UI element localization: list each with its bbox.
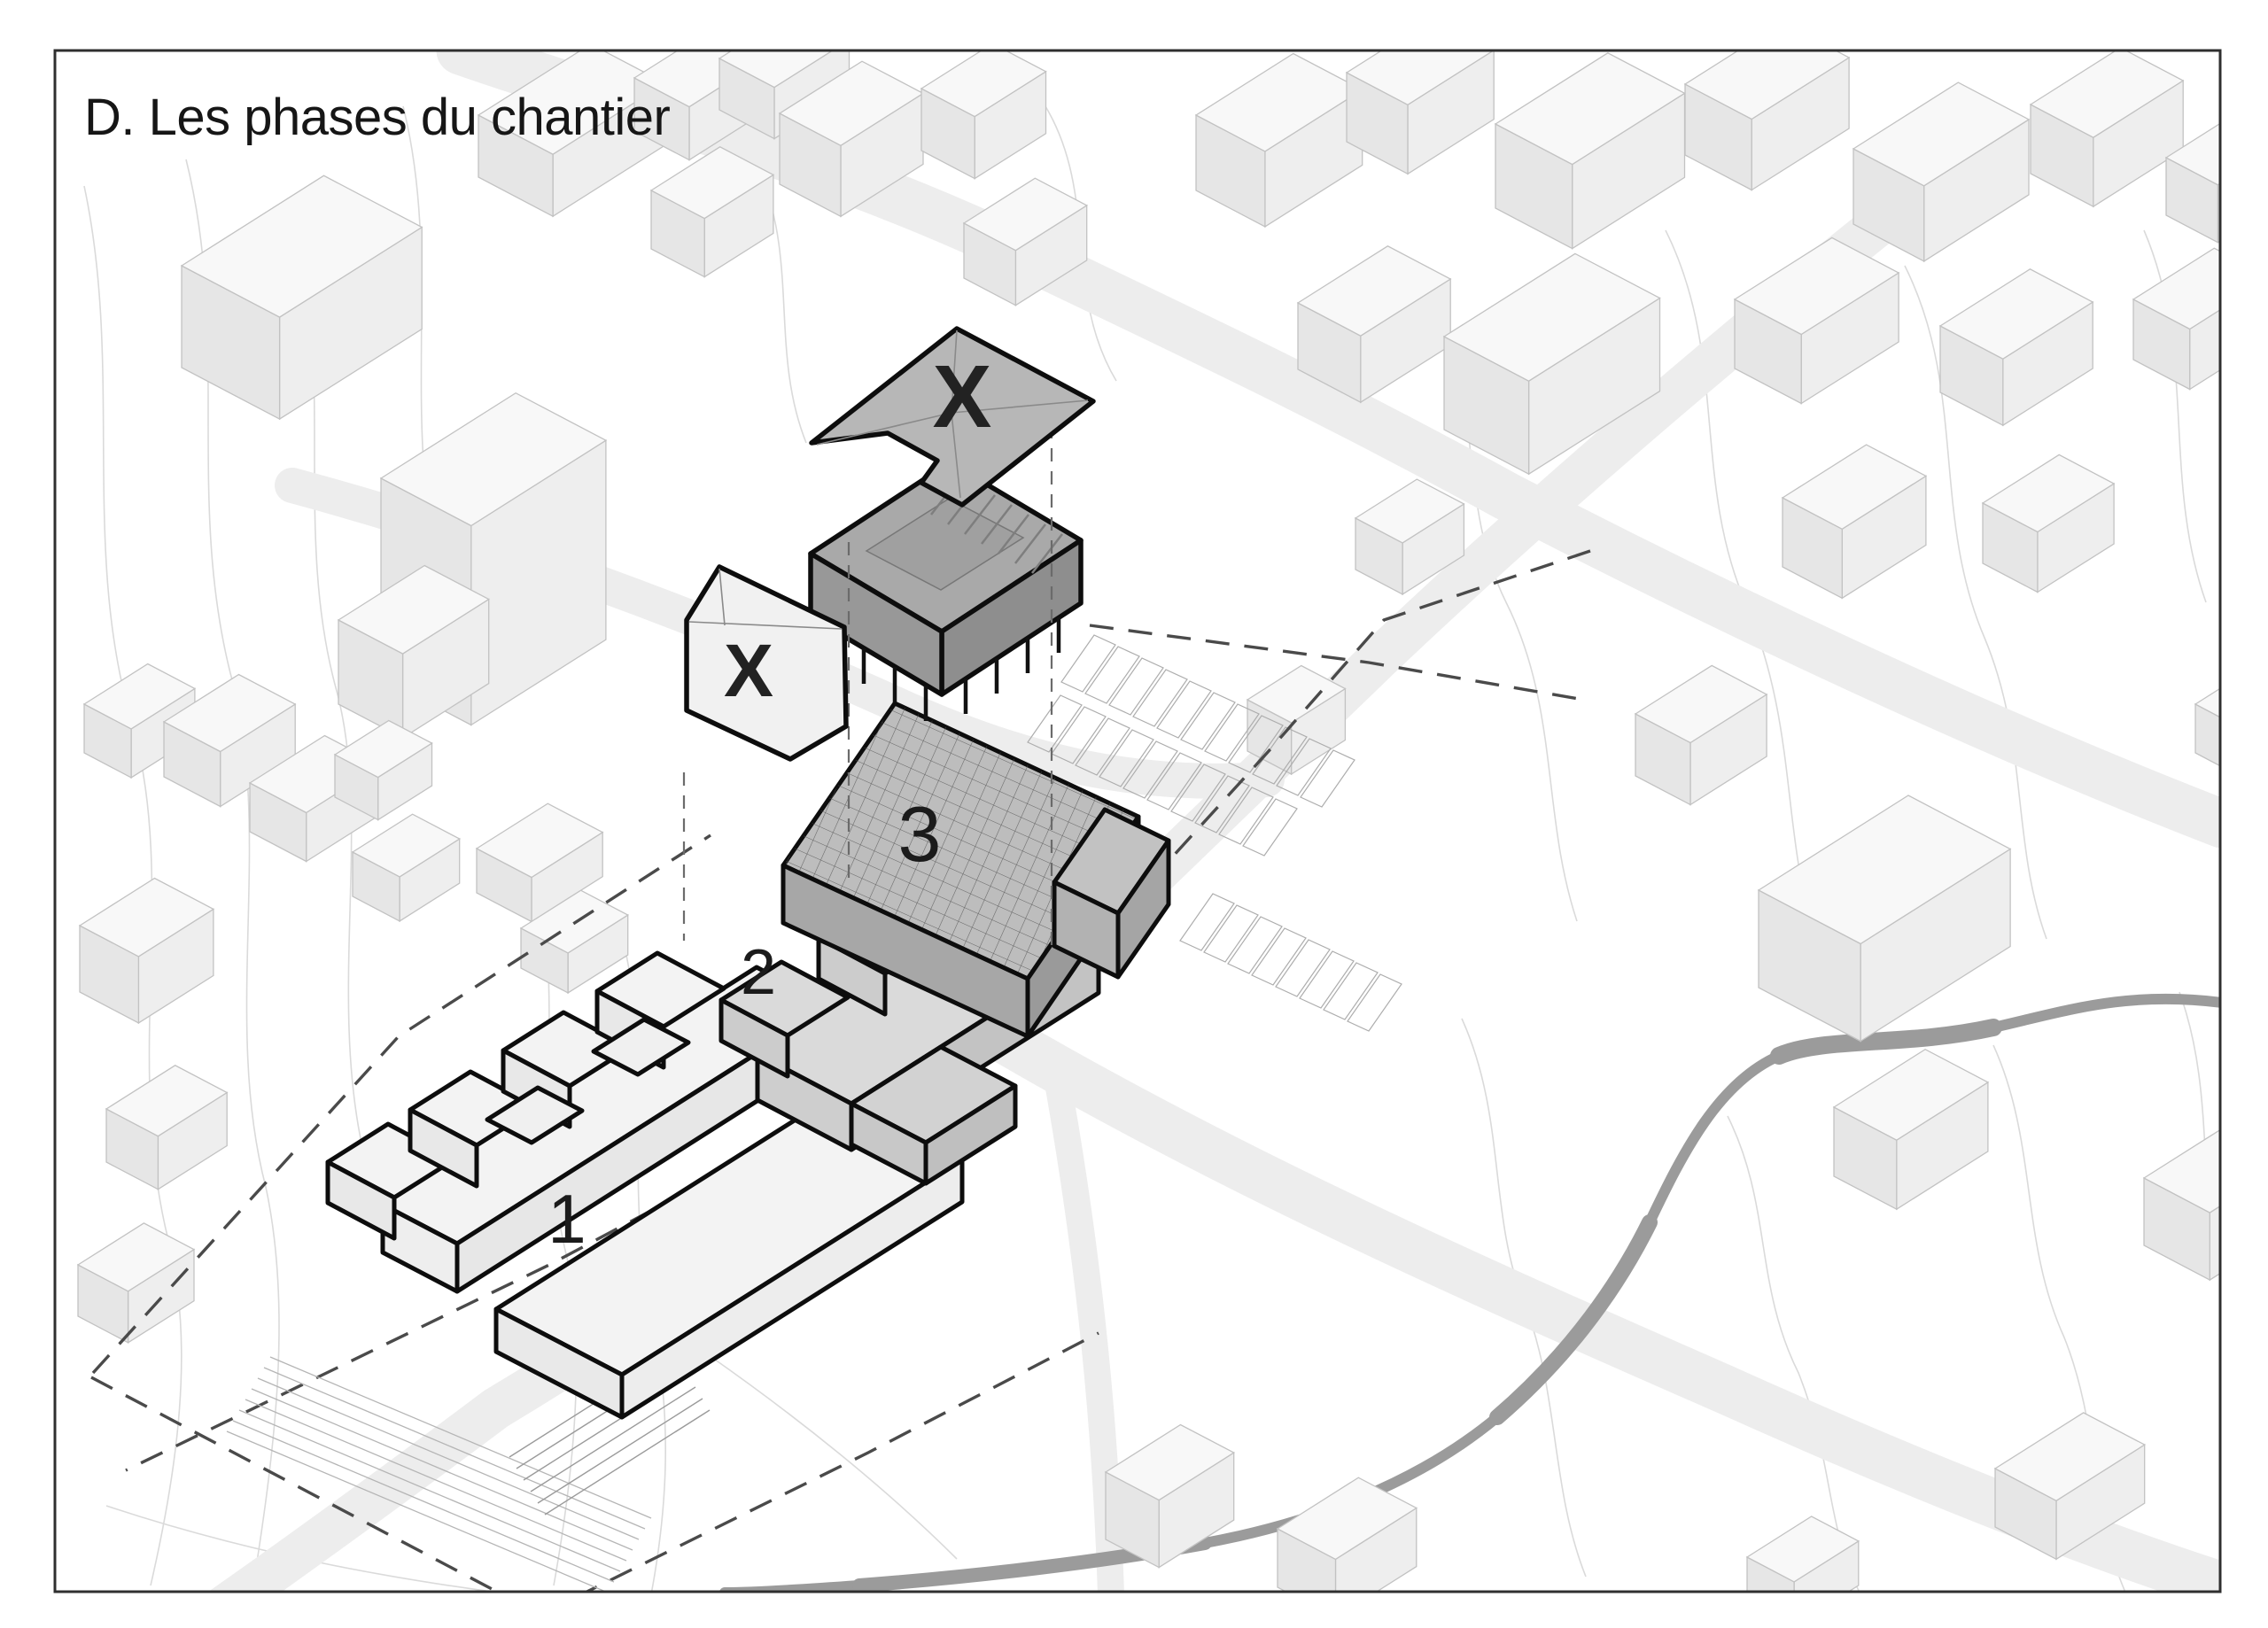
phase-label-2: 2 (741, 937, 776, 1008)
context-building-wall (2241, 690, 2268, 777)
site-plan-diagram: D. Les phases du chantier X X 3 2 1 (0, 0, 2268, 1628)
demolition-mark-house: X (724, 629, 773, 712)
context-building-wall (2218, 140, 2268, 243)
site-plan-page: D. Les phases du chantier X X 3 2 1 (0, 0, 2268, 1628)
phase-label-3: 3 (898, 790, 942, 878)
phase-label-1: 1 (548, 1180, 586, 1258)
page-title: D. Les phases du chantier (84, 89, 671, 146)
demolition-mark-roof: X (933, 347, 992, 446)
